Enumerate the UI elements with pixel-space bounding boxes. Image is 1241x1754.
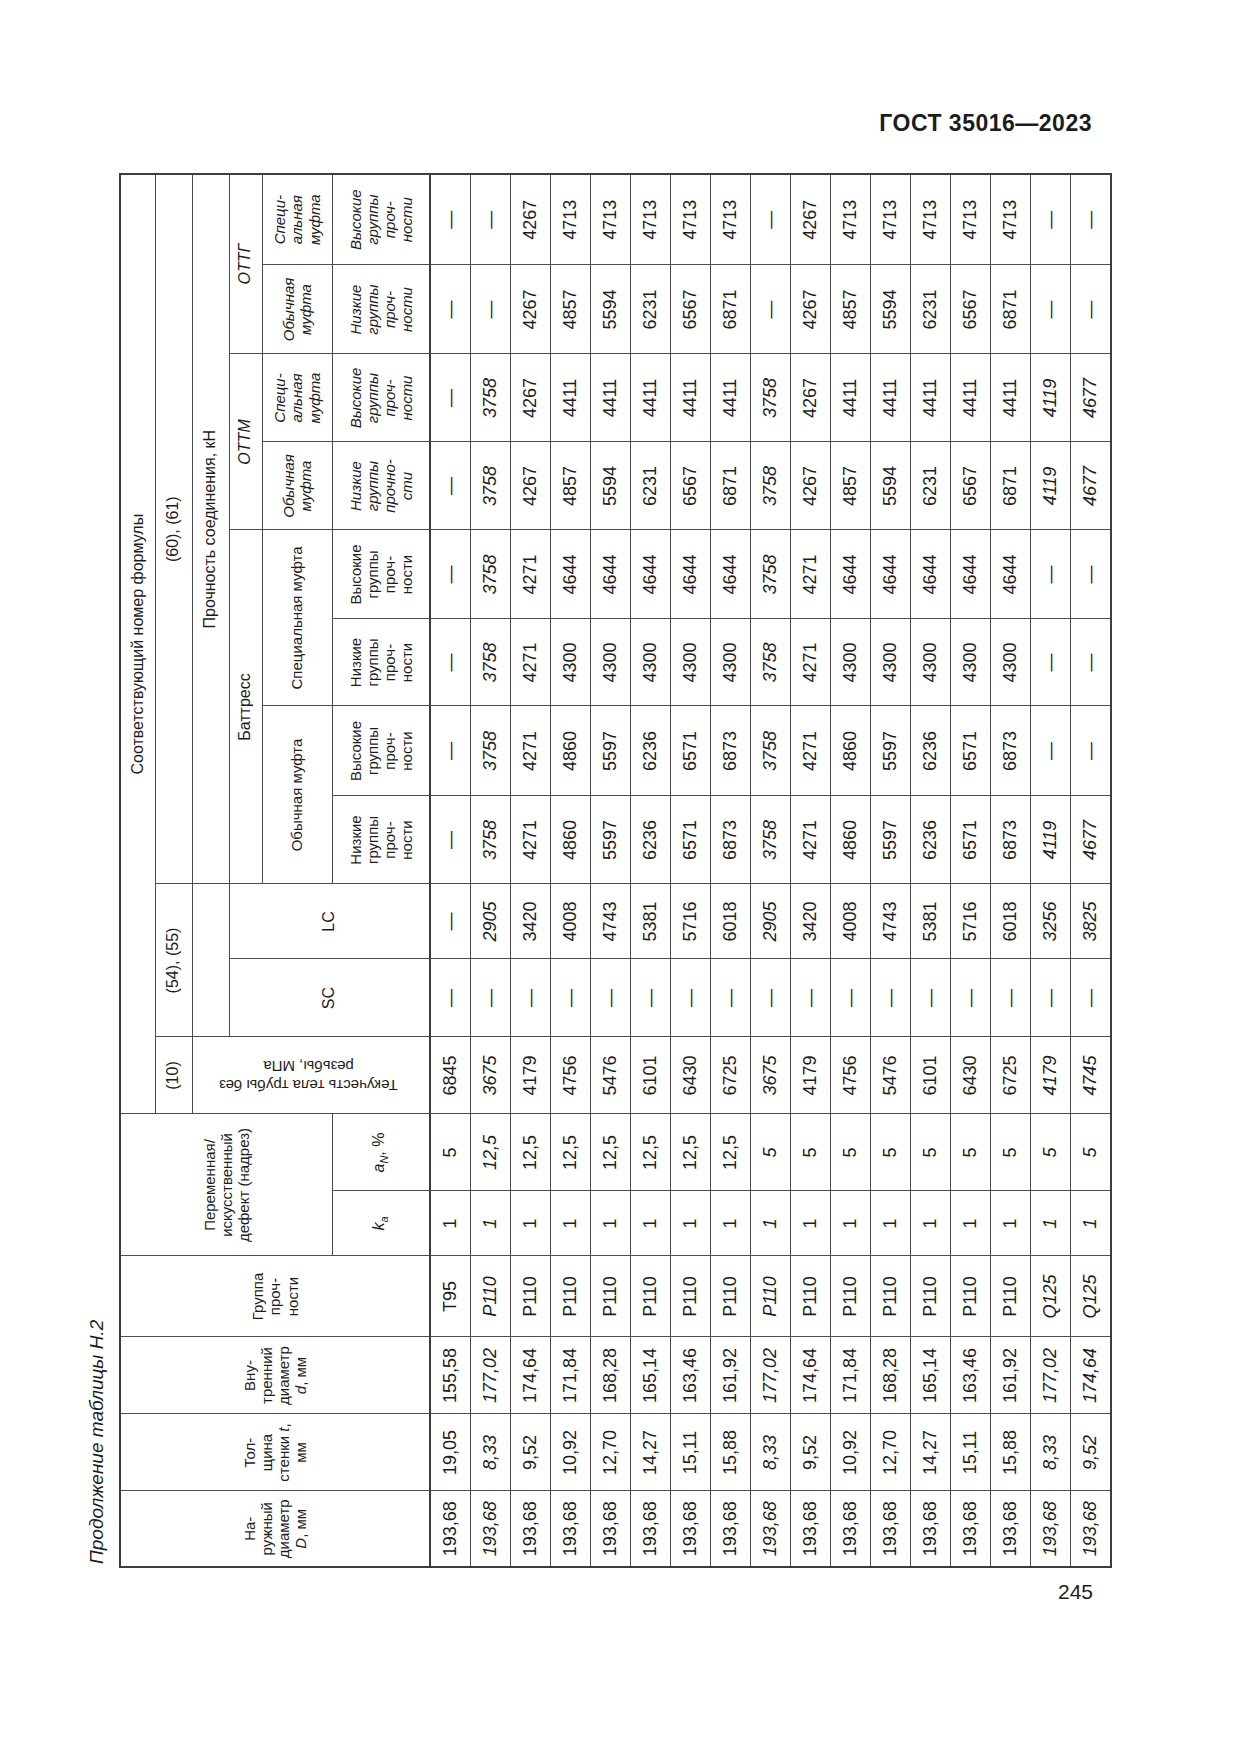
data-cell: 6571 [951,706,991,796]
data-cell: 193,68 [551,1491,591,1567]
table-row: 193,689,52174,64Q125154745—38254677———46… [1071,174,1112,1567]
col-header-inner-diameter: Вну- тренний диаметр d, мм [120,1337,430,1414]
data-cell: 3758 [471,796,511,884]
data-cell: 4008 [551,884,591,959]
col-header-formula-10: (10) [155,1037,192,1114]
data-cell: 6236 [911,796,951,884]
data-cell: — [1071,959,1112,1037]
data-cell: 193,68 [991,1491,1031,1567]
data-cell: — [751,959,791,1037]
data-cell: 6873 [711,796,751,884]
table-row: 193,688,33177,02Р110153675—2905375837583… [751,174,791,1567]
data-cell: — [471,265,511,354]
data-cell: 6101 [911,1037,951,1114]
col-header-artificial-defect: Переменная/ искусственный дефект (надрез… [120,1114,332,1256]
data-cell: — [631,959,671,1037]
data-cell: 4756 [831,1037,871,1114]
table-row: 193,6810,92171,84Р110112,54756—400848604… [551,174,591,1567]
data-cell: 168,28 [591,1337,631,1414]
data-cell: 2905 [751,884,791,959]
col-header-buttress: Баттресс [229,530,262,884]
data-cell: 8,33 [751,1414,791,1491]
data-cell: 10,92 [551,1414,591,1491]
col-header-ottg-special-high-groups: Высокие группы проч- ности [332,174,430,265]
data-cell: 12,5 [671,1114,711,1191]
data-cell: 1 [1071,1191,1112,1256]
data-cell: 4644 [991,530,1031,619]
table-row: 193,6815,11163,46Р110112,56430—571665716… [671,174,711,1567]
data-cell: 1 [551,1191,591,1256]
data-cell: 5381 [911,884,951,959]
data-cell: 193,68 [751,1491,791,1567]
data-cell: 6231 [911,265,951,354]
data-cell: 165,14 [631,1337,671,1414]
data-cell: 193,68 [711,1491,751,1567]
col-header-joint-strength: Прочность соединения, кН [192,174,229,884]
data-cell: 5 [911,1114,951,1191]
data-cell: 8,33 [1031,1414,1071,1491]
data-cell: 6231 [631,265,671,354]
data-cell: 4300 [831,619,871,706]
data-cell: 1 [951,1191,991,1256]
data-cell: 4713 [831,174,871,265]
col-header-strength-group: Группа проч- ности [120,1256,430,1337]
table-row: 193,6815,11163,46Р110156430—571665716571… [951,174,991,1567]
col-header-pipe-body-yield: Текучесть тела трубы без резьбы, МПа [192,1037,430,1114]
data-cell: — [430,354,471,442]
data-cell: 3825 [1071,884,1112,959]
data-cell: 4644 [711,530,751,619]
col-header-formula-60-61: (60), (61) [155,174,192,884]
table-row: 193,6812,70168,28Р110112,55476—474355975… [591,174,631,1567]
data-cell: 4271 [791,619,831,706]
data-cell: 4677 [1071,796,1112,884]
table-row: 193,6814,27165,14Р110112,56101—538162366… [631,174,671,1567]
data-cell: 6871 [711,265,751,354]
data-cell: 14,27 [631,1414,671,1491]
data-cell: 193,68 [791,1491,831,1567]
data-cell: 1 [791,1191,831,1256]
data-cell: 3758 [471,619,511,706]
data-cell: 9,52 [511,1414,551,1491]
data-cell: 3758 [751,706,791,796]
data-cell: 4713 [671,174,711,265]
data-cell: 4644 [911,530,951,619]
data-cell: — [791,959,831,1037]
data-cell: 4411 [671,354,711,442]
data-cell: 15,11 [951,1414,991,1491]
data-cell: 4743 [591,884,631,959]
data-cell: 1 [631,1191,671,1256]
data-cell: Р110 [551,1256,591,1337]
data-cell: 6871 [991,265,1031,354]
data-cell: 177,02 [471,1337,511,1414]
data-cell: 3758 [751,530,791,619]
col-header-formula-54-55: (54), (55) [155,884,192,1037]
header-spacer-cell [192,884,229,1037]
table-row: 193,6815,88161,92Р110156725—601868736873… [991,174,1031,1567]
data-cell: 4713 [631,174,671,265]
data-cell: 4267 [791,354,831,442]
data-cell: — [430,174,471,265]
data-cell: — [430,959,471,1037]
data-cell: — [430,796,471,884]
data-cell: 4644 [871,530,911,619]
data-cell: — [591,959,631,1037]
data-cell: 4267 [511,265,551,354]
data-cell: 4300 [551,619,591,706]
data-cell: — [951,959,991,1037]
data-cell: 5597 [591,796,631,884]
data-cell: 5597 [871,706,911,796]
data-cell: 161,92 [711,1337,751,1414]
data-cell: 15,88 [991,1414,1031,1491]
table-row: 193,6819,05155,58Т95156845—————————— [430,174,471,1567]
data-cell: 15,88 [711,1414,751,1491]
data-cell: 3256 [1031,884,1071,959]
data-cell: 6236 [631,706,671,796]
data-cell: 4857 [831,265,871,354]
data-cell: — [471,174,511,265]
col-header-ottm-regular-low-groups: Низкие группы прочно- сти [332,442,430,530]
col-header-buttress-special-low-groups: Низкие группы проч- ности [332,619,430,706]
data-cell: Р110 [831,1256,871,1337]
data-cell: — [1031,530,1071,619]
data-cell: 4271 [511,530,551,619]
data-cell: 4271 [511,796,551,884]
data-cell: 5 [1071,1114,1112,1191]
table-header: На- ружный диаметр D, мм Тол- щина стенк… [120,174,430,1567]
data-cell: — [751,265,791,354]
data-cell: 12,70 [591,1414,631,1491]
data-cell: 3758 [471,442,511,530]
data-cell: 4857 [551,442,591,530]
data-cell: 5 [1031,1114,1071,1191]
data-cell: — [511,959,551,1037]
data-cell: Q125 [1071,1256,1112,1337]
col-header-formula-number: Соответствующий номер формулы [120,174,155,1114]
data-cell: Р110 [911,1256,951,1337]
table-row: 193,6815,88161,92Р110112,56725—601868736… [711,174,751,1567]
data-cell: 193,68 [1031,1491,1071,1567]
data-cell: 4267 [791,442,831,530]
table-body: 193,6819,05155,58Т95156845——————————193,… [430,174,1111,1567]
data-cell: — [471,959,511,1037]
data-cell: — [1031,619,1071,706]
data-cell: 4411 [991,354,1031,442]
data-cell: 4644 [951,530,991,619]
data-cell: 193,68 [671,1491,711,1567]
data-cell: 4756 [551,1037,591,1114]
data-cell: — [1071,530,1112,619]
data-cell: 12,5 [591,1114,631,1191]
data-cell: 5 [951,1114,991,1191]
data-cell: 6873 [711,706,751,796]
data-cell: Р110 [871,1256,911,1337]
data-cell: 4271 [791,706,831,796]
data-cell: 193,68 [511,1491,551,1567]
data-cell: 4411 [631,354,671,442]
data-cell: 4119 [1031,796,1071,884]
data-cell: 12,5 [511,1114,551,1191]
data-cell: Р110 [991,1256,1031,1337]
col-header-buttress-regular-coupling: Обычная муфта [262,706,332,884]
data-cell: 4644 [831,530,871,619]
data-cell: 6430 [951,1037,991,1114]
data-cell: 5594 [591,265,631,354]
data-cell: 5 [831,1114,871,1191]
data-cell: Р110 [791,1256,831,1337]
col-header-ottm-special-high-groups: Высокие группы проч- ности [332,354,430,442]
data-cell: — [991,959,1031,1037]
data-cell: — [430,265,471,354]
table-row: 193,689,52174,64Р110112,54179—3420427142… [511,174,551,1567]
data-cell: 165,14 [911,1337,951,1414]
data-cell: — [1071,706,1112,796]
data-cell: 12,5 [471,1114,511,1191]
data-cell: 4644 [631,530,671,619]
col-header-ottm-special-coupling: Специ- альная муфта [262,354,332,442]
data-cell: — [871,959,911,1037]
data-cell: 6571 [671,706,711,796]
data-cell: 12,5 [551,1114,591,1191]
data-cell: 4300 [671,619,711,706]
data-cell: 4411 [551,354,591,442]
table-row: 193,689,52174,64Р110154179—3420427142714… [791,174,831,1567]
data-cell: 6725 [711,1037,751,1114]
table-row: 193,688,33177,02Р110112,53675—2905375837… [471,174,511,1567]
data-cell: 4300 [711,619,751,706]
data-cell: 6873 [991,796,1031,884]
data-cell: 171,84 [831,1337,871,1414]
data-cell: 6567 [671,442,711,530]
data-cell: 4713 [911,174,951,265]
data-cell: 168,28 [871,1337,911,1414]
data-cell: 14,27 [911,1414,951,1491]
data-cell: 177,02 [1031,1337,1071,1414]
data-cell: 6018 [991,884,1031,959]
col-header-buttress-regular-low-groups: Низкие группы проч- ности [332,796,430,884]
data-cell: 6018 [711,884,751,959]
data-cell: Р110 [751,1256,791,1337]
data-cell: 6236 [631,796,671,884]
data-cell: 5594 [591,442,631,530]
data-cell: — [1031,265,1071,354]
data-cell: 193,68 [911,1491,951,1567]
data-cell: 4300 [911,619,951,706]
data-cell: 4860 [551,796,591,884]
data-cell: 4713 [991,174,1031,265]
data-cell: 4745 [1071,1037,1112,1114]
table-row: 193,6812,70168,28Р110155476—474355975597… [871,174,911,1567]
document-page: ГОСТ 35016—2023 Продолжение таблицы Н.2 … [0,0,1241,1754]
data-cell: 6430 [671,1037,711,1114]
data-cell: 3758 [751,796,791,884]
data-cell: 4644 [671,530,711,619]
data-cell: 4300 [871,619,911,706]
data-cell: 3758 [751,619,791,706]
data-cell: 1 [991,1191,1031,1256]
data-cell: 4300 [951,619,991,706]
col-header-ka-coefficient: ka [332,1191,430,1256]
data-cell: Р110 [511,1256,551,1337]
data-cell: 155,58 [430,1337,471,1414]
col-header-outer-diameter: На- ружный диаметр D, мм [120,1491,430,1567]
table-row: 193,6810,92171,84Р110154756—400848604860… [831,174,871,1567]
data-cell: 4271 [791,530,831,619]
data-cell: 4119 [1031,442,1071,530]
data-cell: 4267 [511,442,551,530]
data-cell: 1 [751,1191,791,1256]
data-cell: 1 [831,1191,871,1256]
data-cell: 5716 [951,884,991,959]
data-cell: 12,70 [871,1414,911,1491]
data-cell: 193,68 [831,1491,871,1567]
data-cell: 4677 [1071,442,1112,530]
data-cell: 4179 [791,1037,831,1114]
data-cell: 6236 [911,706,951,796]
data-cell: 6845 [430,1037,471,1114]
data-cell: — [1031,959,1071,1037]
data-cell: — [831,959,871,1037]
data-cell: 4860 [831,796,871,884]
data-cell: 4860 [551,706,591,796]
data-cell: 12,5 [711,1114,751,1191]
data-cell: 163,46 [671,1337,711,1414]
data-cell: 6567 [671,265,711,354]
col-header-wall-thickness: Тол- щина стенки t, мм [120,1414,430,1491]
data-cell: 3758 [471,354,511,442]
data-cell: 193,68 [471,1491,511,1567]
data-cell: 5594 [871,442,911,530]
data-cell: 5 [791,1114,831,1191]
data-cell: Р110 [711,1256,751,1337]
data-cell: 1 [1031,1191,1071,1256]
data-cell: 4267 [791,265,831,354]
data-cell: 4411 [871,354,911,442]
data-cell: 5 [871,1114,911,1191]
data-cell: 10,92 [831,1414,871,1491]
data-cell: 4119 [1031,354,1071,442]
data-cell: 4271 [511,619,551,706]
data-cell: 6871 [711,442,751,530]
data-cell: 4411 [591,354,631,442]
data-cell: 5 [751,1114,791,1191]
data-cell: — [430,884,471,959]
data-cell: 4300 [631,619,671,706]
data-cell: Р110 [631,1256,671,1337]
data-cell: 4644 [591,530,631,619]
col-header-lc: LC [229,884,430,959]
data-cell: 4857 [551,265,591,354]
data-cell: Р110 [951,1256,991,1337]
data-cell: — [671,959,711,1037]
data-cell: 4860 [831,706,871,796]
data-cell: 1 [871,1191,911,1256]
data-cell: 171,84 [551,1337,591,1414]
data-cell: 4300 [591,619,631,706]
data-cell: — [1071,619,1112,706]
data-cell: 5381 [631,884,671,959]
standard-number-header: ГОСТ 35016—2023 [879,110,1092,137]
data-cell: 6567 [951,442,991,530]
data-cell: 4411 [831,354,871,442]
data-cell: — [1031,174,1071,265]
col-header-ottm-regular-coupling: Обычная муфта [262,442,332,530]
col-header-ottm: ОТТМ [229,354,262,530]
data-cell: 6725 [991,1037,1031,1114]
data-cell: 6231 [631,442,671,530]
col-header-ottg: ОТТГ [229,174,262,354]
rotated-table-block: Продолжение таблицы Н.2 На- ружный диаме… [82,173,1112,1568]
data-cell: — [430,442,471,530]
data-cell: 193,68 [951,1491,991,1567]
data-cell: 5597 [871,796,911,884]
data-cell: 5476 [871,1037,911,1114]
data-cell: 4743 [871,884,911,959]
data-cell: 174,64 [1071,1337,1112,1414]
data-cell: 2905 [471,884,511,959]
data-cell: 9,52 [1071,1414,1112,1491]
data-cell: 8,33 [471,1414,511,1491]
data-cell: 4713 [951,174,991,265]
page-number: 245 [1058,1580,1093,1604]
data-cell: 4179 [1031,1037,1071,1114]
data-cell: 5597 [591,706,631,796]
col-header-ottg-special-coupling: Специ- альная муфта [262,174,332,265]
data-cell: 4411 [711,354,751,442]
data-cell: 3758 [471,706,511,796]
col-header-sc: SC [229,959,430,1037]
data-cell: 1 [911,1191,951,1256]
data-cell: 4677 [1071,354,1112,442]
data-cell: 6571 [671,796,711,884]
col-header-ottg-regular-low-groups: Низкие группы проч- ности [332,265,430,354]
data-cell: 1 [430,1191,471,1256]
data-cell: 6101 [631,1037,671,1114]
data-cell: 3420 [791,884,831,959]
data-cell: — [1071,265,1112,354]
data-cell: Р110 [591,1256,631,1337]
data-cell: 4411 [911,354,951,442]
data-cell: 19,05 [430,1414,471,1491]
data-cell: 161,92 [991,1337,1031,1414]
data-cell: — [751,174,791,265]
data-cell: 6231 [911,442,951,530]
data-cell: 193,68 [591,1491,631,1567]
data-cell: 6571 [951,796,991,884]
data-cell: 3675 [751,1037,791,1114]
col-header-ottg-regular-coupling: Обычная муфта [262,265,332,354]
data-cell: 1 [671,1191,711,1256]
pipe-joint-strength-table: На- ружный диаметр D, мм Тол- щина стенк… [119,173,1112,1568]
data-cell: — [430,706,471,796]
data-cell: 1 [591,1191,631,1256]
data-cell: 1 [711,1191,751,1256]
data-cell: 4179 [511,1037,551,1114]
col-header-buttress-regular-high-groups: Высокие группы проч- ности [332,706,430,796]
data-cell: Р110 [471,1256,511,1337]
data-cell: — [551,959,591,1037]
data-cell: 1 [511,1191,551,1256]
data-cell: — [430,619,471,706]
rotated-table-area: Продолжение таблицы Н.2 На- ружный диаме… [82,173,83,174]
data-cell: 5594 [871,265,911,354]
data-cell: 4713 [871,174,911,265]
data-cell: Т95 [430,1256,471,1337]
data-cell: 193,68 [631,1491,671,1567]
data-cell: 9,52 [791,1414,831,1491]
